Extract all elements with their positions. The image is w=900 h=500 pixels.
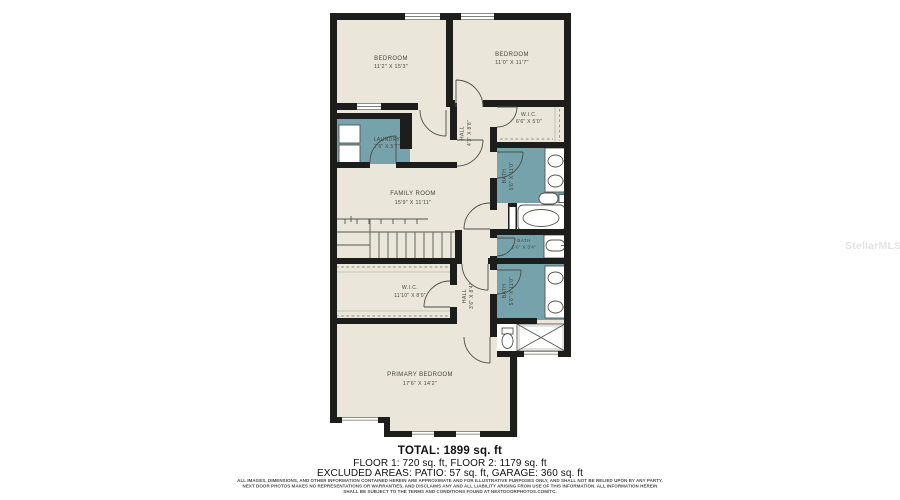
label-bath-small: BATH [517,238,531,243]
svg-text:3'6" X 8'4": 3'6" X 8'4" [469,283,475,309]
sink-icon [548,175,563,187]
toilet-icon [502,334,513,349]
disclaimer-text: ALL IMAGES, DIMENSIONS, AND OTHER INFORM… [75,478,825,494]
svg-text:4'3" X 8'8": 4'3" X 8'8" [467,120,473,146]
stellar-mls-watermark: StellarMLS [845,240,900,252]
floor-plan-page: BEDROOM 11'2" X 15'3" BEDROOM 11'0" X 11… [0,0,900,500]
floor-areas-text: FLOOR 1: 720 sq. ft, FLOOR 2: 1179 sq. f… [0,458,900,469]
svg-text:11'0" X 11'7": 11'0" X 11'7" [495,60,529,66]
sink-icon [548,155,563,167]
sink-icon [548,301,563,313]
label-family-room: FAMILY ROOM [390,191,436,197]
label-wic-primary: W.I.C. [402,285,418,291]
sink-icon [548,272,563,284]
label-hall-lower: HALL [462,289,468,303]
svg-text:17'6" X 14'2": 17'6" X 14'2" [403,381,437,387]
svg-text:5'6" X 11'0": 5'6" X 11'0" [509,162,515,191]
svg-text:6'6" X 5'0": 6'6" X 5'0" [516,119,542,125]
label-bath-primary: BATH [502,284,508,299]
disclaimer-line: SHALL BE SUBJECT TO THE TERMS AND CONDIT… [75,489,825,494]
label-primary-bedroom: PRIMARY BEDROOM [387,372,453,378]
label-hall-upper: HALL [460,126,466,140]
dryer-fixture [339,145,360,163]
svg-text:5'6" X 3'4": 5'6" X 3'4" [512,245,536,250]
svg-text:11'10" X 8'0": 11'10" X 8'0" [394,293,426,299]
floor-plan-drawing: BEDROOM 11'2" X 15'3" BEDROOM 11'0" X 11… [0,0,900,500]
bathtub-basin [523,210,559,227]
total-area-text: TOTAL: 1899 sq. ft [0,445,900,457]
label-wic-small: W.I.C. [521,112,537,118]
label-bedroom-right: BEDROOM [495,52,529,58]
svg-text:11'2" X 15'3": 11'2" X 15'3" [374,64,408,70]
svg-text:5'6" X 11'0": 5'6" X 11'0" [509,277,515,306]
label-laundry: LAUNDRY [374,137,401,143]
svg-text:15'9" X 11'11": 15'9" X 11'11" [395,200,432,206]
label-bath-hall: BATH [502,169,508,184]
svg-text:7'6" X 5'7": 7'6" X 5'7" [374,144,400,150]
washer-fixture [339,125,360,143]
label-bedroom-left: BEDROOM [374,56,408,62]
toilet-icon [539,193,558,204]
